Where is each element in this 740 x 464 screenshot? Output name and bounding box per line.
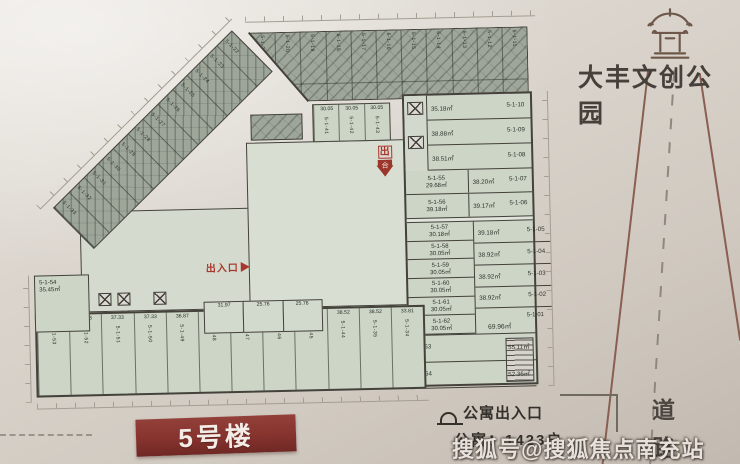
unit-cell: 33.815-1-34 <box>391 307 425 388</box>
stamp-bottom-char: 合 <box>381 161 389 175</box>
unit-label: 38.52 <box>336 309 349 315</box>
unit-label: 5-1-09 <box>507 126 525 136</box>
entrance-legend-label: 公寓出入口 <box>463 402 543 423</box>
unit-label: 5-1-44 <box>340 321 346 339</box>
unit-label: 39.18㎡ <box>427 206 448 213</box>
unit-label: 5-1-34 <box>405 319 411 337</box>
unit-label: 52.36㎡ <box>508 368 530 378</box>
unit-label-pair: 39.18㎡5-1-05 <box>474 226 549 237</box>
exit-label: 出入口 <box>206 259 239 275</box>
unit-label-stack: 5-1-6230.05㎡ <box>431 317 452 331</box>
unit-row: 38.92㎡5-1-02 <box>475 285 551 309</box>
unit-cell: 5-1-18 <box>325 31 352 100</box>
unit-row: 35.18㎡5-1-10 <box>427 93 531 120</box>
unit-cell: 5-1-12 <box>476 28 503 97</box>
unit-row: 38.51㎡5-1-08 <box>428 143 532 170</box>
unit-label: 5-1-07 <box>509 175 527 185</box>
unit-cell: 5-1-6030.05㎡ <box>408 278 474 298</box>
unit-label: 29.68㎡ <box>426 182 447 189</box>
unit-cell: 5-1-5730.18㎡ <box>407 222 473 242</box>
unit-cell: 5-1-5639.18㎡ <box>406 194 470 218</box>
unit-label: 30.05㎡ <box>430 250 451 257</box>
unit-label: 38.92㎡ <box>478 249 500 259</box>
stamp-top-char: 出 <box>378 145 392 158</box>
mid-sub-row: 31.9725.7625.76 <box>205 299 324 334</box>
unit-label: 38.52 <box>369 309 382 315</box>
unit-cell: 36.875-1-49 <box>165 312 199 393</box>
unit-cell: 30.055-1-43 <box>364 104 390 141</box>
unit-cell: 5-1-11 <box>501 27 528 96</box>
unit-label: 5-1-05 <box>527 226 545 236</box>
dimension-line-bottom <box>37 395 429 410</box>
unit-label-pair: 38.92㎡5-1-03 <box>475 269 550 280</box>
unit-cell: 39.17㎡5-1-06 <box>469 192 533 216</box>
unit-label: 30.18㎡ <box>429 231 450 238</box>
unit-cell: 5-1-19 <box>300 32 327 101</box>
unit-label: 5-1-49 <box>180 324 186 342</box>
unit-cell: 5-1-16 <box>375 30 402 99</box>
unit-label: 38.20㎡ <box>472 176 494 186</box>
unit-cell: 37.335-1-50 <box>133 313 167 394</box>
unit-label: 5-1-16 <box>386 32 392 68</box>
unit-label: 5-1-41 <box>324 117 330 135</box>
floorplan-photo: 5-1-215-1-205-1-195-1-185-1-175-1-165-1-… <box>0 0 740 464</box>
unit-label-pair: 38.92㎡5-1-04 <box>474 248 549 259</box>
unit-label: 5-1-14 <box>436 31 442 67</box>
unit-label: 38.51㎡ <box>432 152 454 162</box>
unit-5-1-54: 5-1-54 35.45㎡ <box>34 274 90 332</box>
road-char-1: 道 <box>652 391 675 425</box>
unit-label: 5-1-43 <box>374 116 380 134</box>
project-title: 大丰文创公园 <box>578 58 738 130</box>
elevator-core <box>404 96 429 172</box>
building-banner-label: 5号楼 <box>178 416 255 456</box>
mid-strip: 30.055-1-4130.055-1-4230.055-1-43 <box>312 103 391 143</box>
unit-row: 5-1-5639.18㎡39.17㎡5-1-06 <box>406 192 533 219</box>
unit-label-pair: 38.92㎡5-1-02 <box>475 291 550 302</box>
unit-row: 5-1-5529.68㎡38.20㎡5-1-07 <box>406 168 533 195</box>
unit-label: 5-1-02 <box>528 291 546 301</box>
unit-cell: 38.525-1-35 <box>358 308 392 389</box>
unit-label: 25.76 <box>257 301 270 317</box>
unit-label: 5-1-19 <box>310 34 316 70</box>
unit-label: 38.92㎡ <box>479 271 501 281</box>
unit-cell: 5-1-0169.96㎡ <box>476 307 552 333</box>
unit-label: 33.81 <box>401 308 414 314</box>
building-banner: 5号楼 <box>135 414 296 457</box>
watermark: 搜狐号@搜狐焦点南充站 <box>452 432 704 464</box>
unit-row: 39.18㎡5-1-05 <box>474 220 550 244</box>
unit-label: 55.11㎡ <box>508 342 529 352</box>
unit-label: 5-1-62 <box>433 317 450 324</box>
unit-row: 38.88㎡5-1-09 <box>427 118 531 145</box>
unit-label: 37.33 <box>143 314 156 320</box>
unit-label: 5-1-50 <box>147 325 153 343</box>
unit-cell: 38.525-1-44 <box>326 308 360 389</box>
unit-label-stack: 5-1-5830.05㎡ <box>430 243 451 257</box>
unit-cell: 31.97 <box>204 301 245 334</box>
unit-label-stack: 5-1-5639.18㎡ <box>427 199 448 213</box>
elevator-shaft <box>117 292 130 305</box>
unit-cell: 5-1-5529.68㎡ <box>406 170 470 194</box>
unit-cell: 30.055-1-41 <box>313 105 339 142</box>
unit-label-pair: 39.17㎡5-1-06 <box>469 199 531 210</box>
entrance-arc-icon <box>440 412 457 423</box>
unit-row: 38.92㎡5-1-04 <box>474 242 550 266</box>
right-wing-upper: 35.18㎡5-1-1038.88㎡5-1-0938.51㎡5-1-08 <box>404 93 532 171</box>
unit-cell: 5-1-15 <box>401 30 428 99</box>
unit-cell: 5-1-14 <box>426 29 453 98</box>
unit-cell: 5-1-13 <box>451 29 478 98</box>
unit-label: 5-1-17 <box>361 33 367 69</box>
dimension-line-left <box>23 276 32 403</box>
unit-label-stack: 5-1-6130.05㎡ <box>431 299 452 313</box>
unit-label: 5-1-18 <box>335 34 341 70</box>
unit-cell: 37.335-1-51 <box>101 313 135 394</box>
unit-label: 30.05 <box>320 106 333 112</box>
unit-cell: 38.20㎡5-1-07 <box>469 168 533 192</box>
unit-label: 35.18㎡ <box>431 102 453 112</box>
unit-label: 31.97 <box>217 302 230 318</box>
unit-label: 5-1-10 <box>506 101 524 111</box>
unit-label: 5-1-11 <box>512 30 518 66</box>
unit-label: 5-1-15 <box>411 32 417 68</box>
unit-label-stack: 5-1-5930.05㎡ <box>430 261 451 275</box>
unit-label-stack: 5-1-5730.18㎡ <box>429 224 450 238</box>
exit-marker-west: 出入口 <box>206 259 250 275</box>
elevator-shaft <box>153 292 166 305</box>
unit-cell: 5-1-5830.05㎡ <box>407 240 473 260</box>
elevator-shaft <box>98 293 111 306</box>
unit-label: 25.76 <box>296 300 309 316</box>
unit-label: 5-1-03 <box>528 269 546 279</box>
unit-label-stack: 5-1-6030.05㎡ <box>431 280 452 294</box>
unit-label-pair: 38.20㎡5-1-07 <box>469 175 531 186</box>
unit-label: 39.18㎡ <box>478 227 500 237</box>
unit-cell: 5-1-5930.05㎡ <box>408 259 474 279</box>
unit-label: 5-1-35 <box>373 320 379 338</box>
unit-label-pair: 38.51㎡5-1-08 <box>428 151 529 163</box>
right-arrow-icon <box>241 261 250 271</box>
unit-cell: 30.055-1-42 <box>338 104 364 141</box>
unit-label: 36.87 <box>176 313 189 319</box>
top-wing: 5-1-215-1-205-1-195-1-185-1-175-1-165-1-… <box>248 26 529 102</box>
unit-label: 5-1-51 <box>115 326 121 344</box>
unit-label: 39.17㎡ <box>473 200 495 210</box>
unit-label: 5-1-04 <box>527 248 545 258</box>
unit-label: 5-1-08 <box>507 151 525 161</box>
down-arrow-icon: 合 <box>376 159 393 176</box>
unit-cell: 25.76 <box>282 299 323 332</box>
unit-label-pair: 35.18㎡5-1-10 <box>427 101 528 113</box>
unit-label-stack: 5-1-5529.68㎡ <box>426 175 447 189</box>
unit-label: 5-1-59 <box>432 261 449 268</box>
unit-label: 38.88㎡ <box>431 127 453 137</box>
unit-label: 30.05㎡ <box>431 306 452 313</box>
unit-label: 38.92㎡ <box>479 292 501 302</box>
unit-label: 5-1-20 <box>285 35 291 71</box>
unit-label: 37.33 <box>111 315 124 321</box>
unit-label: 5-1-01 <box>527 312 544 319</box>
unit-label: 5-1-12 <box>486 30 492 66</box>
stair-block <box>250 114 303 141</box>
unit-label: 5-1-13 <box>461 31 467 67</box>
unit-label: 30.05㎡ <box>430 268 451 275</box>
unit-cell: 25.76 <box>243 300 284 333</box>
unit-label: 30.05㎡ <box>431 287 452 294</box>
unit-label: 69.96㎡ <box>488 321 511 331</box>
unit-label-pair: 38.88㎡5-1-09 <box>428 126 529 138</box>
unit-label: 30.05㎡ <box>432 324 453 331</box>
unit-label: 5-1-06 <box>509 199 527 209</box>
exit-stamp-marker: 出 合 <box>376 145 394 176</box>
unit-cell: 5-1-17 <box>350 31 377 100</box>
unit-label: 5-1-42 <box>349 116 355 134</box>
unit-label: 35.45㎡ <box>39 286 60 293</box>
unit-row: 38.92㎡5-1-03 <box>475 264 551 288</box>
unit-label: 30.05 <box>370 105 383 111</box>
unit-label: 30.05 <box>345 105 358 111</box>
dimension-line-top <box>245 10 535 23</box>
